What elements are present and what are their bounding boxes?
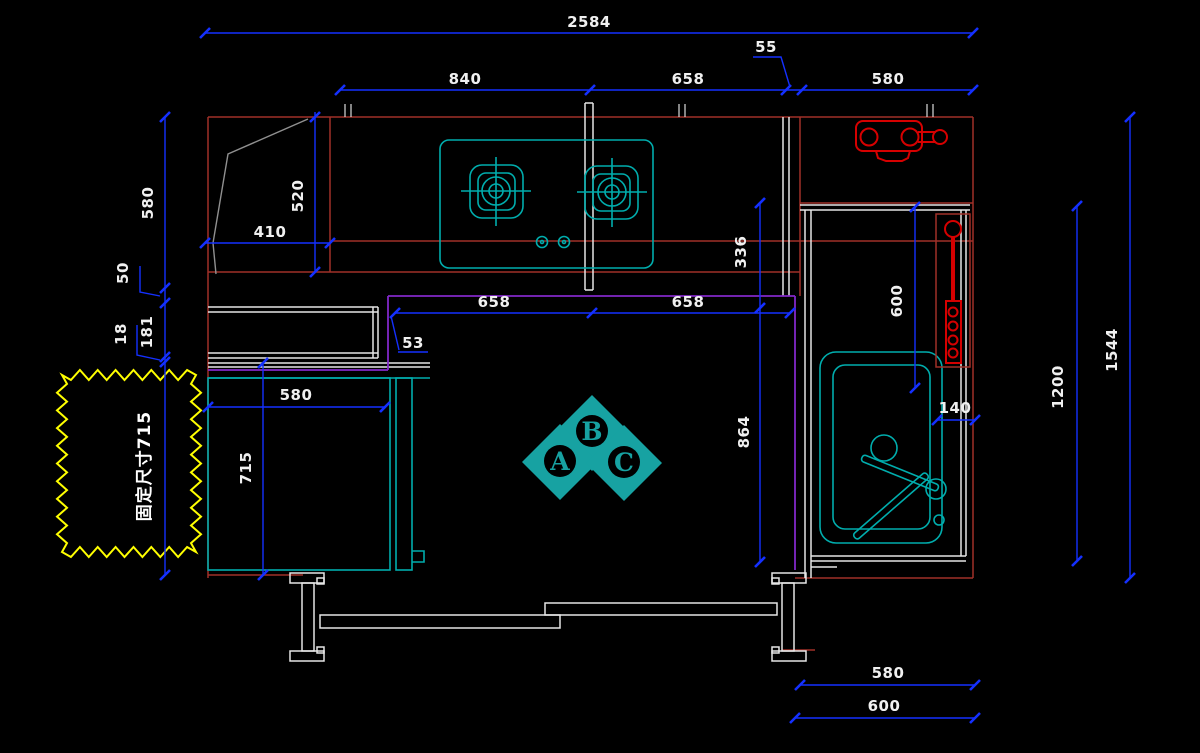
dim-label-715: 715 (237, 452, 255, 485)
section-markers: B A C (522, 395, 662, 501)
dimensions: 2584 840 658 55 580 410 658 658 53 140 5… (112, 13, 1135, 723)
door-panel-right (545, 603, 777, 615)
sink-faucet (871, 435, 897, 461)
countertop-edge (208, 296, 795, 570)
cooktop-knobs (537, 237, 570, 248)
walls-white (208, 103, 970, 578)
dim-label-55: 55 (755, 38, 777, 56)
dim-label-658-counter-right: 658 (672, 293, 705, 311)
dim-label-658-top: 658 (672, 70, 705, 88)
dim-label-53: 53 (402, 334, 424, 352)
revision-cloud-group: 固定尺寸715 (57, 370, 201, 557)
dim-label-left-580: 580 (139, 187, 157, 220)
dim-label-336: 336 (732, 236, 750, 269)
dim-label-50: 50 (114, 262, 132, 284)
cooktop (440, 140, 653, 268)
burner-right (577, 158, 647, 227)
wall-fixture (936, 214, 970, 367)
sink (820, 352, 946, 543)
dim-label-580-top: 580 (872, 70, 905, 88)
dim-label-fridge-580: 580 (280, 386, 313, 404)
sliding-door (290, 573, 806, 661)
dim-label-520: 520 (289, 180, 307, 213)
marker-c-label: C (614, 448, 634, 477)
dim-label-658-counter-left: 658 (478, 293, 511, 311)
burner-left (461, 157, 531, 226)
water-heater (856, 121, 947, 161)
dim-label-864: 864 (735, 416, 753, 449)
cloud-note-label: 固定尺寸715 (134, 411, 155, 522)
dim-label-1544: 1544 (1103, 328, 1121, 372)
dim-label-181: 181 (138, 316, 156, 349)
cad-canvas: B A C 固定尺寸715 (0, 0, 1200, 753)
dim-label-overall-width: 2584 (567, 13, 611, 31)
dim-label-bottom-580: 580 (872, 664, 905, 682)
dim-label-18: 18 (112, 323, 130, 345)
dim-label-140: 140 (939, 399, 972, 417)
kitchen-plan-drawing: B A C 固定尺寸715 (0, 0, 1200, 753)
dim-label-bottom-600: 600 (868, 697, 901, 715)
dimension-ticks (160, 28, 1135, 723)
revision-cloud (57, 370, 201, 557)
marker-a-label: A (549, 447, 570, 476)
marker-b-label: B (581, 417, 602, 446)
dim-label-600: 600 (888, 285, 906, 318)
door-panel-left (320, 615, 560, 628)
dim-label-1200: 1200 (1049, 365, 1067, 409)
dim-label-410: 410 (254, 223, 287, 241)
dim-label-840: 840 (449, 70, 482, 88)
